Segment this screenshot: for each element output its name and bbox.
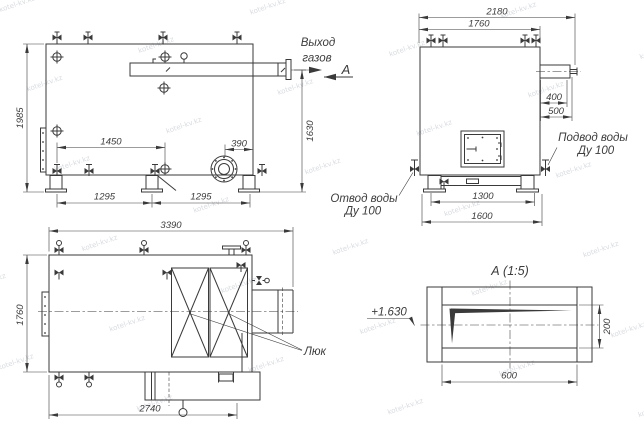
base-frame-side <box>424 176 539 193</box>
dim-1300: 1300 <box>472 191 494 202</box>
boiler-body-plan <box>49 255 252 372</box>
valve-icon <box>233 32 242 44</box>
ash-drawer-handle <box>467 179 479 184</box>
water-supply-dn: Ду 100 <box>576 145 615 157</box>
valve-icon <box>53 165 62 177</box>
damper-blade <box>450 309 573 344</box>
safety-stub <box>223 246 241 255</box>
boss-icon <box>159 163 172 176</box>
boiler-drawing-canvas: kotel-kv.kzkotel-kv.kzkotel-kv.kzkotel-k… <box>0 0 644 430</box>
hatch-label: Люк <box>303 346 327 358</box>
thermometer-boss <box>181 53 187 59</box>
gas-outlet-label-line1: Выход <box>301 37 336 49</box>
valve-icon <box>84 32 93 44</box>
side-view: 2180 1760 400 500 1300 1600 <box>330 7 628 227</box>
lower-platform-plan <box>145 372 260 417</box>
valve-icon <box>242 241 251 256</box>
dim-2180: 2180 <box>485 7 508 18</box>
boiler-body-front <box>46 44 253 175</box>
water-return-dn: Ду 100 <box>343 206 382 218</box>
water-return-valve-icon <box>410 160 419 176</box>
dim-2740: 2740 <box>138 404 161 415</box>
valve-icon <box>140 241 149 256</box>
gas-duct-front <box>130 53 291 80</box>
valve-icon <box>85 373 94 388</box>
boiler-body-side <box>420 47 540 175</box>
dim-500: 500 <box>548 106 565 117</box>
water-supply-label: Подвод воды <box>558 132 628 144</box>
valve-icon <box>163 270 172 280</box>
valve-icon <box>85 165 94 177</box>
section-title: А (1:5) <box>490 264 529 278</box>
boss-icon <box>158 82 171 95</box>
boss-icon <box>159 51 172 64</box>
boss-icon <box>51 51 64 64</box>
valve-icon <box>427 35 436 47</box>
elevation-mark: +1.630 <box>367 307 415 326</box>
dim-1985: 1985 <box>15 107 26 129</box>
hatch-leader <box>230 314 303 350</box>
hatch-1 <box>172 268 209 357</box>
side-view-dimensions: 2180 1760 400 500 1300 1600 <box>419 7 575 227</box>
valve-icon <box>258 165 267 177</box>
dim-1630: 1630 <box>305 120 316 142</box>
water-return-label: Отвод воды <box>330 193 398 205</box>
water-supply-valve-icon <box>541 160 550 176</box>
valve-icon <box>151 165 160 177</box>
drawing-linework: 1985 1630 1450 390 1295 1295 <box>0 0 644 430</box>
valve-icon <box>252 276 269 285</box>
dim-200: 200 <box>602 318 613 336</box>
dim-1760-side: 1760 <box>468 19 490 30</box>
front-left-flange <box>41 128 47 172</box>
plan-left-flange <box>42 292 49 336</box>
burner-flange <box>211 156 237 182</box>
gas-duct-side <box>536 65 581 78</box>
section-view: А (1:5) +1.630 200 <box>367 264 613 386</box>
dim-1450: 1450 <box>100 137 122 148</box>
valve-icon <box>439 35 448 47</box>
dim-1760-plan: 1760 <box>15 304 26 326</box>
top-view: 3390 1760 2740 Люк <box>15 220 327 419</box>
dim-1600: 1600 <box>471 211 493 222</box>
valve-icon <box>55 241 64 256</box>
boss-icon <box>51 125 64 138</box>
dim-1295-left: 1295 <box>94 192 116 203</box>
valve-icon <box>521 35 530 47</box>
furnace-door <box>461 131 504 167</box>
valve-icon <box>53 32 62 44</box>
section-cut-mark: А <box>324 62 353 80</box>
valve-icon <box>532 35 541 47</box>
valve-icon <box>55 270 64 280</box>
front-view-dimensions: 1985 1630 1450 390 1295 1295 <box>15 44 316 208</box>
gas-duct-plan <box>242 288 293 373</box>
dim-3390: 3390 <box>160 220 182 231</box>
elevation-value: +1.630 <box>371 307 407 319</box>
front-view: 1985 1630 1450 390 1295 1295 <box>15 32 335 208</box>
dim-600: 600 <box>501 371 518 382</box>
valve-icon <box>237 262 246 272</box>
gas-outlet-label-line2: газов <box>302 53 331 65</box>
valve-icon <box>159 32 168 44</box>
dim-400: 400 <box>546 92 563 103</box>
section-dimensions: 200 600 <box>442 305 613 386</box>
dim-1295-right: 1295 <box>190 192 212 203</box>
dim-390: 390 <box>231 139 248 150</box>
return-leader <box>399 173 413 196</box>
supply-leader <box>548 148 557 166</box>
valve-icon <box>55 373 64 388</box>
section-letter: А <box>341 62 351 77</box>
hatch-leader <box>191 314 302 351</box>
